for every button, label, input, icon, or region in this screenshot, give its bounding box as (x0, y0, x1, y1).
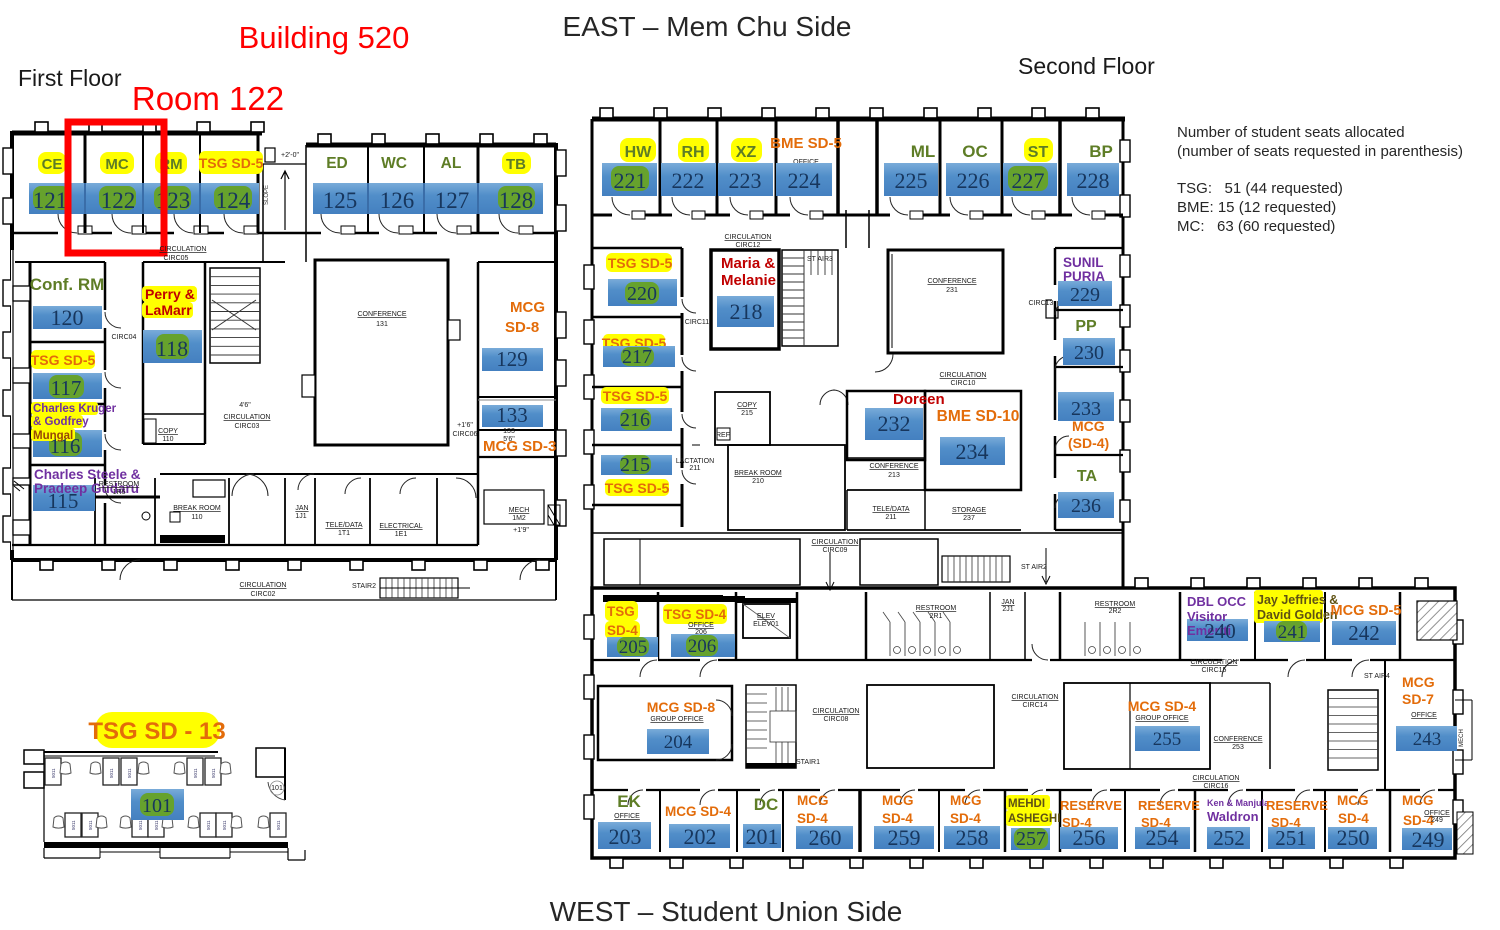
svg-text:CIRC13: CIRC13 (1029, 300, 1054, 307)
svg-text:Conf. RM: Conf. RM (30, 275, 105, 294)
svg-text:231: 231 (946, 287, 958, 294)
svg-text:BP: BP (1089, 142, 1113, 161)
svg-text:TB: TB (506, 156, 526, 173)
svg-text:124: 124 (216, 188, 251, 213)
svg-text:RH: RH (681, 144, 704, 161)
svg-text:WEST – Student Union Side: WEST – Student Union Side (550, 896, 903, 927)
svg-text:Number of student seats alloca: Number of student seats allocated (1177, 124, 1405, 141)
svg-text:HW: HW (625, 144, 653, 161)
svg-text:5011: 5011 (206, 820, 211, 830)
svg-text:217: 217 (622, 346, 652, 368)
svg-text:CIRC02: CIRC02 (251, 591, 276, 598)
svg-text:MCG: MCG (1402, 674, 1435, 690)
svg-text:(number of seats requested in: (number of seats requested in parenthesi… (1177, 143, 1463, 160)
svg-text:MC: 63 (60 requested): MC: 63 (60 requested) (1177, 218, 1335, 235)
svg-text:MCG: MCG (1337, 793, 1369, 808)
svg-text:5011: 5011 (51, 768, 56, 778)
svg-text:5011: 5011 (276, 820, 281, 830)
svg-text:5011: 5011 (222, 820, 227, 830)
svg-text:David Golden: David Golden (1257, 608, 1338, 622)
svg-text:ED: ED (326, 155, 348, 172)
svg-text:Ken & Manjula: Ken & Manjula (1207, 798, 1270, 808)
svg-text:225: 225 (895, 168, 928, 193)
svg-text:110: 110 (191, 514, 202, 521)
svg-text:206: 206 (688, 636, 717, 657)
svg-text:TELE/DATA: TELE/DATA (325, 522, 362, 529)
svg-text:TSG: TSG (607, 604, 635, 619)
svg-text:MECH: MECH (1459, 729, 1465, 747)
svg-text:252: 252 (1213, 826, 1245, 850)
svg-text:256: 256 (1073, 825, 1106, 850)
svg-text:SLOPE: SLOPE (264, 185, 270, 205)
svg-text:5'6": 5'6" (503, 436, 515, 443)
svg-text:CIRCULATION: CIRCULATION (160, 246, 207, 253)
svg-text:RESERVE: RESERVE (1060, 798, 1122, 813)
svg-text:CIRC05: CIRC05 (164, 255, 189, 262)
svg-text:5011: 5011 (88, 820, 93, 830)
svg-text:GROUP OFFICE: GROUP OFFICE (1135, 715, 1188, 722)
svg-text:5011: 5011 (154, 820, 159, 830)
svg-text:128: 128 (499, 188, 534, 213)
svg-text:OFFICE: OFFICE (688, 622, 714, 629)
svg-text:211: 211 (689, 465, 700, 472)
svg-text:1T1: 1T1 (338, 530, 350, 537)
svg-text:PP: PP (1075, 318, 1097, 335)
svg-text:201: 201 (746, 824, 779, 849)
svg-text:REF: REF (716, 432, 730, 439)
svg-text:211: 211 (885, 514, 896, 521)
svg-text:210: 210 (752, 478, 764, 485)
svg-text:TA: TA (1077, 468, 1098, 485)
svg-text:RESERVE: RESERVE (1138, 798, 1200, 813)
svg-text:5011: 5011 (127, 768, 132, 778)
svg-text:TSG SD-4: TSG SD-4 (664, 607, 727, 622)
svg-text:Second Floor: Second Floor (1018, 53, 1155, 79)
svg-text:MCG SD-4: MCG SD-4 (1128, 698, 1197, 714)
svg-text:Room 122: Room 122 (132, 80, 284, 117)
svg-text:226: 226 (957, 168, 990, 193)
svg-text:118: 118 (156, 336, 188, 361)
svg-text:ELECTRICAL: ELECTRICAL (379, 523, 422, 530)
svg-text:ST AIR2: ST AIR2 (1021, 564, 1047, 571)
svg-text:JAN: JAN (1001, 599, 1014, 606)
svg-text:218: 218 (730, 299, 763, 324)
svg-text:CIRC06: CIRC06 (453, 431, 478, 438)
svg-text:236: 236 (1071, 495, 1101, 517)
svg-text:CIRC09: CIRC09 (823, 547, 848, 554)
svg-text:1M2: 1M2 (512, 515, 526, 522)
svg-text:XZ: XZ (736, 144, 757, 161)
svg-text:116: 116 (50, 434, 81, 458)
svg-text:2R2: 2R2 (1109, 608, 1122, 615)
svg-text:CIRC12: CIRC12 (736, 242, 761, 249)
svg-text:254: 254 (1146, 825, 1179, 850)
svg-text:241: 241 (1278, 622, 1307, 643)
svg-text:CIRCULATION: CIRCULATION (725, 234, 772, 241)
svg-text:257: 257 (1016, 828, 1046, 850)
svg-text:STAIR2: STAIR2 (352, 583, 376, 590)
svg-text:WC: WC (381, 155, 407, 172)
svg-text:OFFICE: OFFICE (1411, 712, 1437, 719)
svg-text:253: 253 (1232, 744, 1244, 751)
svg-text:ASHEGHI: ASHEGHI (1008, 813, 1060, 825)
svg-text:CIRCULATION: CIRCULATION (1191, 659, 1238, 666)
svg-text:224: 224 (788, 168, 821, 193)
svg-text:237: 237 (963, 515, 975, 522)
svg-text:5011: 5011 (211, 768, 216, 778)
svg-text:CIRC15: CIRC15 (1202, 667, 1227, 674)
svg-text:1R6: 1R6 (113, 489, 126, 496)
svg-text:234: 234 (956, 439, 989, 464)
svg-text:117: 117 (51, 376, 82, 400)
svg-text:Jay Jeffries &: Jay Jeffries & (1257, 593, 1338, 607)
svg-text:BME SD-10: BME SD-10 (937, 408, 1020, 425)
svg-text:RESTROOM: RESTROOM (99, 481, 140, 488)
svg-text:CIRCULATION: CIRCULATION (1193, 775, 1240, 782)
svg-text:CONFERENCE: CONFERENCE (869, 463, 918, 470)
svg-text:223: 223 (729, 168, 762, 193)
svg-text:OC: OC (962, 142, 988, 161)
svg-text:SD-4: SD-4 (882, 811, 913, 826)
svg-text:5011: 5011 (138, 820, 143, 830)
svg-text:Building 520: Building 520 (239, 20, 410, 55)
svg-text:215: 215 (741, 410, 753, 417)
svg-text:DC: DC (754, 795, 779, 814)
svg-text:(SD-4): (SD-4) (1068, 435, 1109, 451)
svg-text:EK: EK (617, 792, 641, 811)
svg-text:242: 242 (1348, 621, 1380, 645)
svg-text:216: 216 (620, 409, 650, 431)
svg-text:Charles Kruger: Charles Kruger (33, 403, 117, 415)
svg-text:MC: MC (105, 156, 128, 173)
svg-text:SD-4: SD-4 (797, 811, 828, 826)
svg-text:CE: CE (42, 156, 63, 173)
svg-text:101: 101 (271, 785, 283, 792)
svg-text:205: 205 (619, 637, 648, 658)
svg-text:TSG SD - 13: TSG SD - 13 (88, 718, 225, 745)
svg-text:SD-4: SD-4 (1338, 811, 1369, 826)
svg-text:CIRC14: CIRC14 (1023, 702, 1048, 709)
svg-text:OFFICE: OFFICE (1424, 810, 1450, 817)
svg-text:ELEV: ELEV (757, 613, 775, 620)
svg-text:& Godfrey: & Godfrey (33, 416, 89, 428)
svg-text:2J1: 2J1 (1002, 606, 1013, 613)
svg-text:CIRCULATION: CIRCULATION (1012, 694, 1059, 701)
svg-text:1E1: 1E1 (395, 531, 408, 538)
svg-text:259: 259 (888, 825, 921, 850)
svg-text:BME SD-5: BME SD-5 (770, 135, 842, 152)
svg-text:5011: 5011 (193, 768, 198, 778)
svg-text:CIRC10: CIRC10 (951, 380, 976, 387)
svg-text:2R1: 2R1 (930, 613, 943, 620)
svg-text:232: 232 (878, 411, 911, 436)
svg-text:+1'9": +1'9" (513, 527, 529, 534)
svg-text:Melanie: Melanie (721, 272, 776, 289)
svg-text:228: 228 (1077, 168, 1110, 193)
svg-text:TSG SD-5: TSG SD-5 (605, 480, 670, 496)
svg-text:Waldron: Waldron (1207, 809, 1259, 824)
svg-text:CIRCULATION: CIRCULATION (224, 414, 271, 421)
svg-text:CIRCULATION: CIRCULATION (240, 582, 287, 589)
svg-text:AL: AL (441, 155, 462, 172)
svg-text:BREAK ROOM: BREAK ROOM (173, 505, 221, 512)
svg-text:101: 101 (142, 795, 172, 817)
svg-text:Perry &: Perry & (145, 286, 195, 302)
svg-text:133: 133 (503, 428, 515, 435)
svg-text:RESTROOM: RESTROOM (916, 605, 957, 612)
svg-text:4'6": 4'6" (239, 402, 251, 409)
svg-text:CIRC04: CIRC04 (112, 334, 137, 341)
svg-text:126: 126 (380, 188, 415, 213)
svg-text:222: 222 (672, 168, 705, 193)
svg-text:ST AIR4: ST AIR4 (1364, 673, 1390, 680)
svg-text:MCG: MCG (882, 793, 914, 808)
svg-text:First Floor: First Floor (18, 65, 122, 91)
svg-text:ELEV01: ELEV01 (753, 621, 779, 628)
svg-text:204: 204 (664, 732, 693, 753)
svg-text:MCG: MCG (797, 793, 829, 808)
svg-text:249: 249 (1412, 827, 1445, 852)
svg-text:250: 250 (1337, 825, 1370, 850)
svg-text:CIRC11: CIRC11 (685, 319, 709, 326)
svg-text:+1'6": +1'6" (457, 422, 473, 429)
svg-text:DBL OCC: DBL OCC (1187, 594, 1247, 609)
svg-text:203: 203 (609, 824, 642, 849)
svg-text:SD-4: SD-4 (607, 623, 638, 638)
svg-text:Maria &: Maria & (721, 255, 775, 272)
svg-text:+2'-0": +2'-0" (281, 152, 300, 159)
svg-text:215: 215 (620, 454, 650, 476)
svg-text:115: 115 (48, 489, 79, 513)
svg-text:CIRC16: CIRC16 (1204, 783, 1229, 790)
svg-text:CIRC08: CIRC08 (824, 716, 849, 723)
svg-text:125: 125 (323, 188, 358, 213)
svg-text:MCG: MCG (950, 793, 982, 808)
svg-text:COPY: COPY (737, 402, 757, 409)
svg-text:TELE/DATA: TELE/DATA (872, 506, 909, 513)
svg-text:CONFERENCE: CONFERENCE (357, 311, 406, 318)
svg-text:MCG: MCG (510, 299, 545, 316)
svg-text:122: 122 (101, 188, 136, 213)
svg-text:213: 213 (888, 472, 900, 479)
svg-text:GROUP OFFICE: GROUP OFFICE (650, 716, 703, 723)
svg-text:CIRC03: CIRC03 (235, 423, 260, 430)
svg-text:TSG SD-5: TSG SD-5 (31, 352, 96, 368)
svg-text:SUNIL: SUNIL (1063, 255, 1104, 270)
svg-text:CONFERENCE: CONFERENCE (1213, 736, 1262, 743)
svg-text:110: 110 (162, 436, 173, 443)
svg-text:240: 240 (1204, 619, 1236, 643)
svg-text:BREAK ROOM: BREAK ROOM (734, 470, 782, 477)
svg-text:TSG: 51 (44 requested): TSG: 51 (44 requested) (1177, 180, 1343, 197)
svg-text:EAST – Mem Chu Side: EAST – Mem Chu Side (563, 11, 852, 42)
svg-text:JAN: JAN (295, 505, 308, 512)
svg-text:MCG SD-8: MCG SD-8 (647, 699, 716, 715)
svg-text:CIRCULATION: CIRCULATION (940, 372, 987, 379)
svg-text:CIRCULATION: CIRCULATION (812, 539, 859, 546)
svg-text:MEHDI: MEHDI (1008, 798, 1045, 810)
svg-text:STORAGE: STORAGE (952, 507, 986, 514)
svg-text:ML: ML (911, 142, 936, 161)
svg-text:ST AIR3: ST AIR3 (807, 256, 833, 263)
svg-text:127: 127 (435, 188, 470, 213)
svg-text:MCG SD-3: MCG SD-3 (483, 438, 556, 455)
svg-text:129: 129 (496, 347, 528, 371)
svg-text:TSG SD-5: TSG SD-5 (199, 155, 264, 171)
svg-text:255: 255 (1153, 729, 1182, 750)
svg-text:121: 121 (33, 188, 68, 213)
svg-text:133: 133 (496, 403, 528, 427)
svg-text:5011: 5011 (71, 820, 76, 830)
svg-text:243: 243 (1413, 729, 1442, 750)
svg-text:MECH: MECH (509, 507, 530, 514)
svg-text:MCG: MCG (1402, 793, 1434, 808)
svg-text:MCG SD-5: MCG SD-5 (1331, 603, 1402, 619)
svg-text:ST: ST (1028, 144, 1049, 161)
svg-text:220: 220 (627, 283, 657, 305)
svg-text:SD-4: SD-4 (950, 811, 981, 826)
svg-text:233: 233 (1071, 398, 1101, 420)
svg-text:RESTROOM: RESTROOM (1095, 601, 1136, 608)
svg-text:MCG: MCG (1072, 418, 1105, 434)
svg-text:131: 131 (376, 321, 388, 328)
svg-text:TSG SD-5: TSG SD-5 (608, 255, 673, 271)
svg-text:STAIR1: STAIR1 (796, 759, 820, 766)
svg-text:LACTATION: LACTATION (676, 458, 714, 465)
svg-text:OFFICE: OFFICE (614, 813, 640, 820)
svg-text:5011: 5011 (109, 768, 114, 778)
svg-text:SD-7: SD-7 (1402, 691, 1434, 707)
svg-text:227: 227 (1012, 168, 1045, 193)
svg-text:TSG SD-5: TSG SD-5 (603, 388, 668, 404)
svg-text:260: 260 (809, 825, 842, 850)
svg-text:Charles Steele &: Charles Steele & (34, 467, 141, 482)
svg-text:RESERVE: RESERVE (1266, 798, 1328, 813)
svg-text:230: 230 (1074, 342, 1104, 364)
svg-text:MCG SD-4: MCG SD-4 (665, 804, 731, 819)
svg-text:251: 251 (1275, 826, 1307, 850)
svg-text:COPY: COPY (158, 428, 178, 435)
svg-text:1J1: 1J1 (295, 513, 306, 520)
svg-text:CIRCULATION: CIRCULATION (813, 708, 860, 715)
svg-text:120: 120 (51, 305, 84, 330)
svg-text:CONFERENCE: CONFERENCE (927, 278, 976, 285)
svg-text:BME: 15 (12 requested): BME: 15 (12 requested) (1177, 199, 1336, 216)
svg-text:229: 229 (1070, 284, 1100, 306)
svg-text:SD-8: SD-8 (505, 319, 539, 336)
svg-text:202: 202 (684, 824, 717, 849)
svg-text:Doreen: Doreen (893, 391, 945, 408)
svg-text:221: 221 (614, 168, 647, 193)
svg-text:LaMarr: LaMarr (145, 302, 192, 318)
svg-text:258: 258 (956, 825, 989, 850)
svg-text:249: 249 (1431, 817, 1443, 824)
